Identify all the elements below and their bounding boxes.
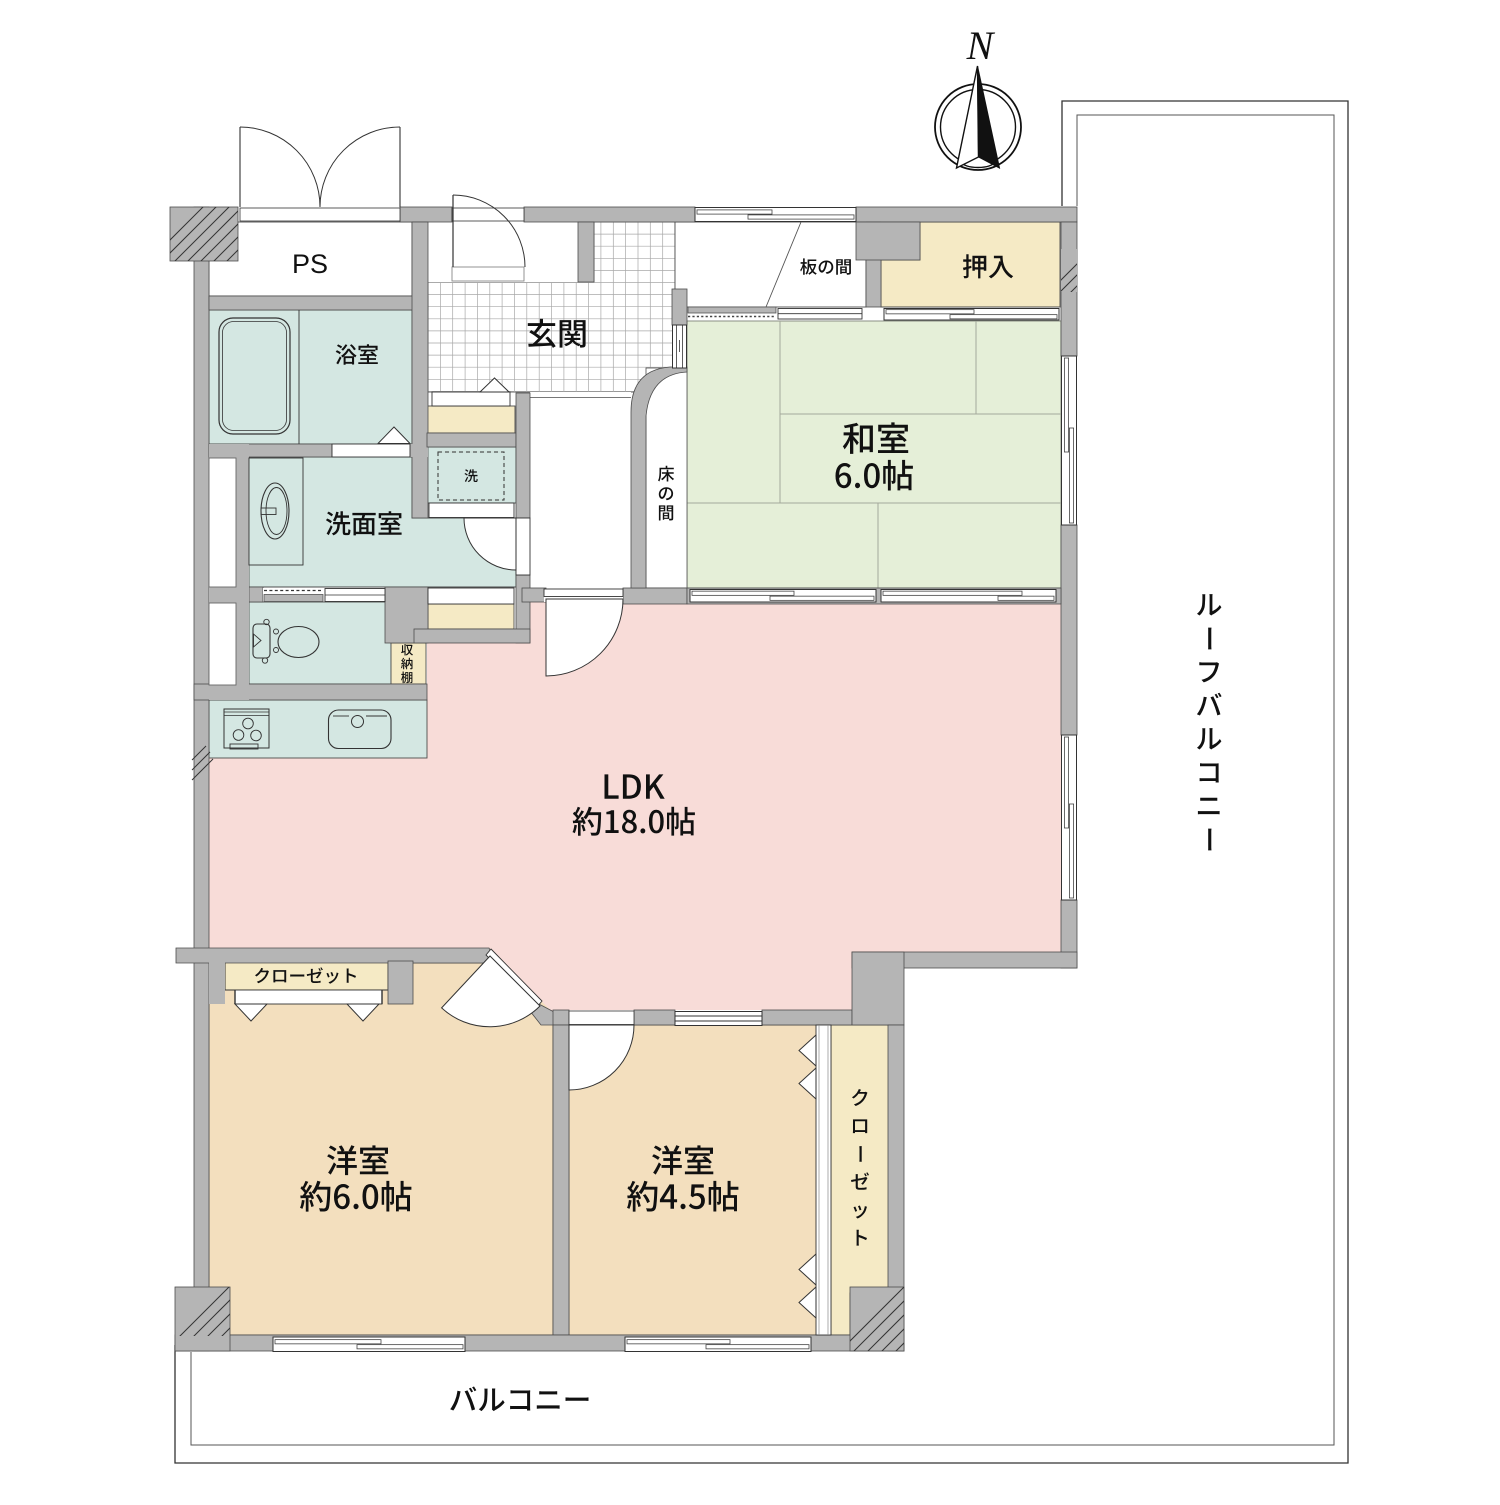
- svg-text:PS: PS: [292, 249, 328, 279]
- svg-text:N: N: [966, 23, 996, 68]
